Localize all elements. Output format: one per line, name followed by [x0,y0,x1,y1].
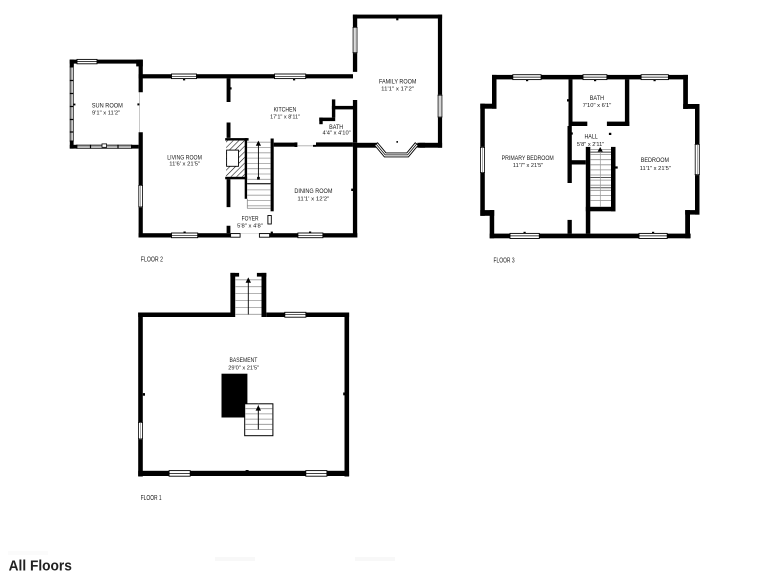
svg-text:FLOOR 1: FLOOR 1 [141,495,162,502]
svg-text:SUN ROOM: SUN ROOM [92,104,123,110]
svg-text:DINING ROOM: DINING ROOM [294,189,332,195]
svg-text:9'1" x 11'2": 9'1" x 11'2" [92,110,120,116]
svg-text:11'1" x 21'5": 11'1" x 21'5" [640,166,671,172]
svg-text:17'1" x 8'11": 17'1" x 8'11" [270,115,300,121]
svg-text:All Floors: All Floors [9,558,72,575]
svg-text:7'10" x 6'1": 7'10" x 6'1" [583,103,612,109]
svg-text:11'7" x 21'5": 11'7" x 21'5" [513,163,543,169]
svg-text:FLOOR 2: FLOOR 2 [141,256,163,263]
svg-text:PRIMARY BEDROOM: PRIMARY BEDROOM [502,156,554,162]
svg-text:29'0" x 21'5": 29'0" x 21'5" [228,366,259,372]
svg-text:BEDROOM: BEDROOM [641,158,669,164]
svg-text:11'6' x 21'5": 11'6' x 21'5" [169,161,200,167]
svg-text:4'4" x 4'10": 4'4" x 4'10" [323,131,351,137]
svg-text:BATH: BATH [590,96,604,102]
svg-text:11'1" x 17'2": 11'1" x 17'2" [381,87,414,93]
svg-text:KITCHEN: KITCHEN [274,108,297,114]
svg-text:5'8" x 4'8": 5'8" x 4'8" [237,224,263,230]
svg-text:FAMILY ROOM: FAMILY ROOM [379,80,417,86]
svg-text:HALL: HALL [584,135,598,141]
svg-text:11'1' x 12'2": 11'1' x 12'2" [297,197,329,203]
svg-text:FLOOR 3: FLOOR 3 [494,258,515,265]
svg-text:FOYER: FOYER [242,217,259,223]
svg-text:BASEMENT: BASEMENT [230,358,258,364]
